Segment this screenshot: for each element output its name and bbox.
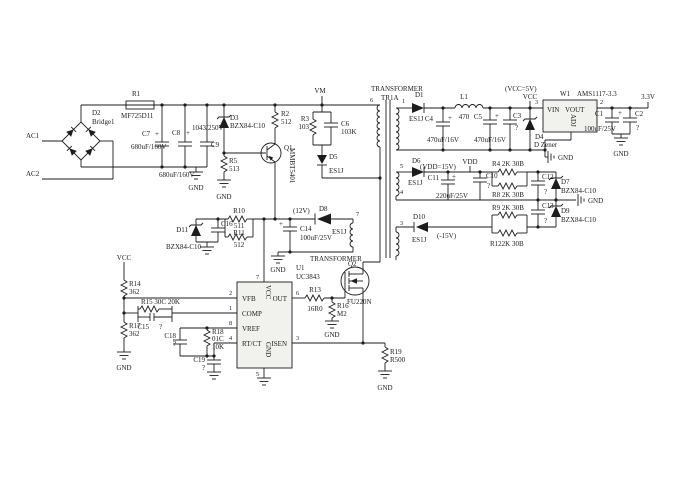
tr1-pin4: 4 bbox=[400, 189, 403, 196]
c10-value: ? bbox=[487, 182, 490, 190]
pwm-controller-u1: VFB COMP VREF RT/CT OUT ISEN VCC GND 2 1… bbox=[124, 264, 320, 385]
c4-ref: C4 bbox=[425, 115, 434, 123]
c7-plus: + bbox=[155, 130, 159, 138]
r9-label: R9 2K 30B bbox=[492, 204, 524, 212]
d3-value: BZX84-C10 bbox=[230, 122, 266, 130]
c14-value: 100uF/25V bbox=[300, 234, 332, 242]
r19-value: R500 bbox=[390, 356, 406, 364]
d10-ref: D10 bbox=[413, 213, 426, 221]
net-vcc5-note: (VCC=5V) bbox=[505, 85, 537, 93]
u1-pin-comp: COMP bbox=[242, 310, 262, 318]
u1-pin-gnd: GND bbox=[264, 342, 272, 357]
c7-ref: C7 bbox=[142, 130, 151, 138]
d3-ref: D3 bbox=[230, 114, 239, 122]
schematic-page: AC1 AC2 D2 Bridge1 R1 MF725D11 C7 + 680u… bbox=[0, 0, 690, 487]
r3-ref: R3 bbox=[301, 115, 310, 123]
tr1-pin3: 3 bbox=[400, 220, 403, 227]
r2-value: 512 bbox=[281, 118, 292, 126]
gnd-label: GND bbox=[216, 193, 231, 201]
c5-value: 470uF/16V bbox=[474, 136, 506, 144]
r11-ref: R11 bbox=[233, 229, 245, 237]
gnd-label: GND bbox=[188, 184, 203, 192]
u1-pin2-num: 2 bbox=[229, 290, 232, 297]
snubber-clamp: VM R3 103 C6 103K D5 ES1J bbox=[299, 87, 381, 178]
net-vcc-left: VCC bbox=[117, 254, 132, 262]
net-12v: (12V) bbox=[293, 207, 310, 215]
c12-value: ? bbox=[544, 188, 547, 196]
c15-value: ? bbox=[159, 323, 162, 331]
r14-value: 362 bbox=[129, 288, 140, 296]
c5-ref: C5 bbox=[474, 113, 483, 121]
l1-value: 470 bbox=[459, 113, 470, 121]
u1-pin6-num: 6 bbox=[296, 290, 299, 297]
r18-code: 01C bbox=[212, 335, 224, 343]
u1-pin3-num: 3 bbox=[296, 335, 299, 342]
c3-value: ? bbox=[515, 124, 518, 132]
w1-ref: W1 bbox=[560, 90, 571, 98]
u1-pin-rtct: RT/CT bbox=[242, 340, 262, 348]
gnd-label: GND bbox=[377, 384, 392, 392]
l1-ref: L1 bbox=[460, 93, 468, 101]
aux-supply: GND D11 BZX84-C10 C16 R10 511 R11 512 (1… bbox=[166, 205, 359, 282]
gnd-label: GND bbox=[270, 266, 285, 274]
r5-ref: R5 bbox=[229, 157, 238, 165]
r4-label: R4 2K 30B bbox=[492, 160, 524, 168]
r3-value: 103 bbox=[299, 123, 310, 131]
c16-ref: C16 bbox=[221, 220, 233, 228]
r13-value: 16R0 bbox=[307, 305, 323, 313]
c1-plus: + bbox=[618, 109, 622, 117]
r18-value: 10K bbox=[212, 343, 224, 351]
d11-value: BZX84-C10 bbox=[166, 243, 202, 251]
net-ac2: AC2 bbox=[26, 170, 40, 178]
w1-pin-vout: VOUT bbox=[565, 106, 585, 114]
w1-value: AMS1117-3.3 bbox=[577, 90, 617, 98]
gnd-label: GND bbox=[558, 154, 573, 162]
r16-value: M2 bbox=[337, 310, 347, 318]
c19-ref: C19 bbox=[193, 356, 205, 364]
r2-ref: R2 bbox=[281, 110, 290, 118]
c8-ref: C8 bbox=[172, 129, 181, 137]
d2-ref: D2 bbox=[92, 109, 101, 117]
c13-value: ? bbox=[544, 217, 547, 225]
d4-value: D Zener bbox=[534, 141, 558, 149]
r16-ref: R16 bbox=[337, 302, 349, 310]
c8-value: 680uF/160V bbox=[159, 171, 194, 179]
d8-ref: D8 bbox=[319, 205, 328, 213]
net-ac1: AC1 bbox=[26, 132, 40, 140]
r19-ref: R19 bbox=[390, 348, 402, 356]
d2-value: Bridge1 bbox=[92, 118, 115, 126]
output-5v-3v3: D1 ES1J L1 470 C4 + 470uF/16V C5 + 470uF… bbox=[396, 85, 655, 163]
d6-value: ES1J bbox=[408, 179, 423, 187]
d11-ref: D11 bbox=[176, 226, 188, 234]
tr1-pin7: 7 bbox=[356, 211, 359, 218]
d7-ref: D7 bbox=[561, 178, 570, 186]
r14-ref: R14 bbox=[129, 280, 141, 288]
schematic-canvas: AC1 AC2 D2 Bridge1 R1 MF725D11 C7 + 680u… bbox=[0, 0, 690, 487]
u1-pin-isen: ISEN bbox=[271, 340, 287, 348]
c6-ref: C6 bbox=[341, 120, 350, 128]
c6-value: 103K bbox=[341, 128, 357, 136]
tr1-pin5: 5 bbox=[400, 163, 403, 170]
tr1a-ref: TR1A bbox=[381, 94, 399, 102]
c18-ref: C18 bbox=[164, 332, 176, 340]
u1-pin7-num: 7 bbox=[256, 274, 259, 281]
r11-value: 512 bbox=[234, 241, 245, 249]
q1-value: MMBT5401 bbox=[288, 148, 296, 184]
c4-plus: + bbox=[448, 114, 452, 122]
d1-value: ES1J bbox=[409, 115, 424, 123]
u1-pin-vfb: VFB bbox=[242, 295, 256, 303]
c7-value: 680uF/160V bbox=[131, 143, 166, 151]
d9-ref: D9 bbox=[561, 207, 570, 215]
c12-ref: C12 bbox=[542, 173, 554, 181]
w1-pin3-num: 3 bbox=[535, 99, 538, 106]
c14-plus: + bbox=[279, 220, 283, 228]
d4-ref: D4 bbox=[535, 133, 544, 141]
c5-plus: + bbox=[495, 112, 499, 120]
c2-ref: C2 bbox=[635, 110, 644, 118]
c9-value: 1043/250V bbox=[192, 124, 224, 132]
net-vm: VM bbox=[314, 87, 326, 95]
u1-pin4-num: 4 bbox=[229, 335, 232, 342]
u1-pin1-num: 1 bbox=[229, 305, 232, 312]
w1-pin-adj: ADJ bbox=[569, 114, 577, 127]
d10-value: ES1J bbox=[412, 236, 427, 244]
u1-value: UC3843 bbox=[296, 273, 320, 281]
c4-value: 470uF/16V bbox=[427, 136, 459, 144]
r12-label: R122K 30B bbox=[490, 240, 524, 248]
output-15v-rails: D6 ES1J (VDD=15V) VDD C11 + 220uF/25V C1… bbox=[396, 157, 603, 248]
gnd-label: GND bbox=[116, 364, 131, 372]
gnd-label: GND bbox=[613, 150, 628, 158]
r8-label: R8 2K 30B bbox=[492, 191, 524, 199]
c11-ref: C11 bbox=[428, 174, 440, 182]
gnd-label: GND bbox=[324, 331, 339, 339]
u1-pin5-num: 5 bbox=[256, 371, 259, 378]
r1-ref: R1 bbox=[132, 90, 141, 98]
gnd-label: GND bbox=[588, 197, 603, 205]
w1-pin2-num: 2 bbox=[600, 99, 603, 106]
r1-value: MF725D11 bbox=[121, 112, 154, 120]
c9-ref: C9 bbox=[211, 141, 220, 149]
u1-pin-vref: VREF bbox=[242, 325, 260, 333]
d7-value: BZX84-C10 bbox=[561, 187, 597, 195]
net-15vn: (-15V) bbox=[437, 232, 457, 240]
r15-label: R15 30C 20K bbox=[141, 298, 180, 306]
q2-value: FU220N bbox=[347, 298, 372, 306]
d5-value: ES1J bbox=[329, 167, 344, 175]
c1-ref: C1 bbox=[595, 110, 604, 118]
tr1-pin6: 6 bbox=[370, 97, 373, 104]
c2-value: ? bbox=[636, 124, 639, 132]
net-vdd-note: (VDD=15V) bbox=[420, 163, 456, 171]
d8-value: ES1J bbox=[332, 228, 347, 236]
c14-ref: C14 bbox=[300, 225, 312, 233]
c3-ref: C3 bbox=[513, 112, 522, 120]
r13-ref: R13 bbox=[309, 286, 321, 294]
net-vdd: VDD bbox=[462, 158, 477, 166]
c11-plus: + bbox=[452, 173, 456, 181]
startup-circuit: GND D3 BZX84-C10 R5 513 R2 512 Q1 MMBT54… bbox=[216, 105, 296, 219]
d9-value: BZX84-C10 bbox=[561, 216, 597, 224]
r10-ref: R10 bbox=[233, 207, 245, 215]
c1-value: 100uF/25V bbox=[584, 125, 616, 133]
tr1-pin1: 1 bbox=[402, 98, 405, 105]
c8-plus: + bbox=[186, 129, 190, 137]
c11-value: 220uF/25V bbox=[436, 192, 468, 200]
r5-value: 513 bbox=[229, 165, 240, 173]
u1-ref: U1 bbox=[296, 264, 305, 272]
d5-ref: D5 bbox=[329, 153, 338, 161]
c15-ref: C15 bbox=[137, 323, 149, 331]
u1-pin-vcc: VCC bbox=[264, 285, 272, 300]
c19-value: ? bbox=[202, 364, 205, 372]
w1-pin-vin: VIN bbox=[547, 106, 559, 114]
net-3v3: 3.3V bbox=[641, 93, 655, 101]
r17-value: 362 bbox=[129, 330, 140, 338]
d1-ref: D1 bbox=[415, 91, 424, 99]
q2-ref: Q2 bbox=[348, 260, 357, 268]
u1-pin-out: OUT bbox=[273, 295, 288, 303]
c18-value: ? bbox=[173, 340, 176, 348]
feedback-network: VCC GND R14 362 R17 362 R15 30C 20K C15 … bbox=[116, 254, 224, 379]
u1-pin8-num: 8 bbox=[229, 320, 232, 327]
